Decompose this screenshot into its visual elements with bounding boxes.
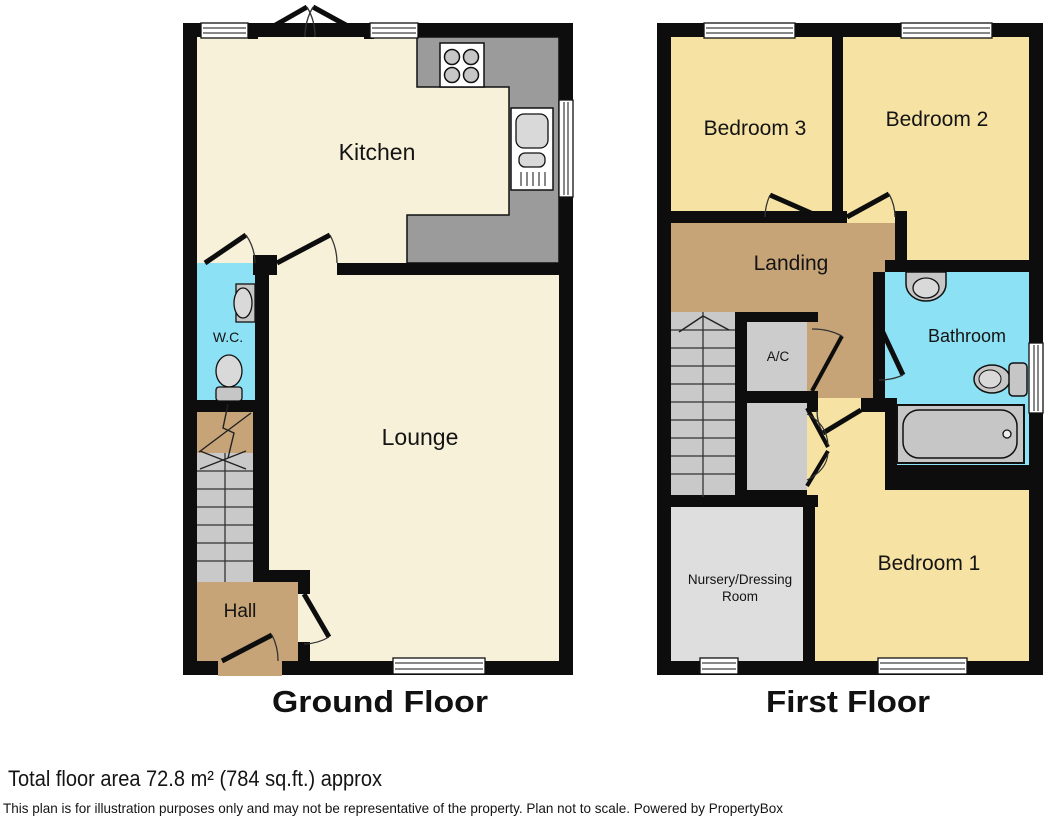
label-landing: Landing: [754, 252, 829, 275]
wall-closets-south: [671, 495, 818, 507]
wall-hall-north-stub: [255, 570, 310, 582]
label-bathroom: Bathroom: [928, 326, 1006, 346]
label-nursery-line2: Room: [722, 589, 758, 604]
floorplan-canvas: Kitchen W.C. Lounge Hall Ground Floor: [0, 0, 1056, 824]
window-frame: [201, 23, 248, 38]
wall-patio-door-stub-left: [248, 23, 258, 39]
basin-bowl: [234, 288, 252, 318]
label-bedroom3: Bedroom 3: [704, 117, 807, 140]
hob-ring: [445, 50, 460, 65]
wall-bed3-bed2: [832, 37, 843, 223]
wall-kitchen-lounge: [337, 263, 559, 275]
wall-bathroom-south: [885, 465, 1029, 477]
ground-floor-plan: Kitchen W.C. Lounge Hall Ground Floor: [183, 7, 573, 719]
window-frame: [901, 23, 992, 38]
toilet-bowl-inner: [979, 370, 1001, 388]
sink-basin: [516, 114, 548, 148]
total-floor-area-text: Total floor area 72.8 m² (784 sq.ft.) ap…: [8, 766, 382, 791]
first-floor-plan: Bedroom 3 Bedroom 2 Landing A/C Bathroom…: [657, 23, 1043, 719]
room-lounge: [255, 263, 559, 661]
wall-bathroom-north: [885, 260, 1029, 272]
disclaimer-text: This plan is for illustration purposes o…: [3, 800, 783, 816]
room-wardrobe: [747, 403, 807, 490]
window-frame: [1029, 343, 1043, 413]
toilet-cistern: [1009, 363, 1027, 396]
label-lounge: Lounge: [382, 424, 459, 450]
label-ac: A/C: [767, 349, 790, 364]
wall-ac-north: [735, 312, 818, 322]
wall-stairs-east: [255, 412, 269, 570]
first-floor-title: First Floor: [766, 684, 930, 719]
toilet-cistern: [216, 387, 242, 401]
bathroom-basin: [906, 272, 946, 301]
footer: Total floor area 72.8 m² (784 sq.ft.) ap…: [3, 766, 783, 816]
label-kitchen: Kitchen: [339, 139, 416, 165]
window-frame: [878, 658, 967, 674]
wc-toilet: [216, 355, 242, 401]
window-frame: [370, 23, 418, 38]
label-bedroom2: Bedroom 2: [886, 108, 989, 131]
hob-ring: [464, 68, 479, 83]
gf-window-top-left: [201, 23, 248, 38]
wall-hall-lounge-top-stub: [298, 582, 310, 594]
ff-window-bed1-south: [878, 658, 967, 674]
window-frame: [393, 658, 485, 674]
wall-bed1-door-stub-right: [861, 398, 885, 412]
wall-wc-east: [255, 263, 269, 412]
gf-window-lounge-south: [393, 658, 485, 674]
hob-ring: [464, 50, 479, 65]
basin-bowl: [913, 278, 939, 298]
sink-basin-small: [519, 153, 545, 167]
wall-stairs-east: [735, 312, 747, 507]
wall-bath-west: [885, 398, 897, 465]
label-nursery-line1: Nursery/Dressing: [688, 572, 792, 587]
wall-hall-lounge-bottom-stub: [298, 642, 310, 661]
wall-bathroom-west-lower: [873, 380, 885, 398]
ff-window-bed3-north: [704, 23, 795, 38]
ff-window-nursery-south: [700, 658, 738, 674]
gf-window-kitchen-east: [559, 100, 573, 197]
label-bedroom1: Bedroom 1: [878, 552, 981, 575]
hob: [440, 43, 484, 87]
landing-corridor: [807, 312, 873, 403]
hob-ring: [445, 68, 460, 83]
wall-nursery-east: [803, 495, 815, 661]
window-frame: [700, 658, 738, 674]
window-frame: [559, 100, 573, 197]
ff-window-bed2-north: [901, 23, 992, 38]
window-frame: [704, 23, 795, 38]
label-hall: Hall: [224, 601, 257, 622]
floorplan-page: Kitchen W.C. Lounge Hall Ground Floor: [0, 0, 1056, 824]
bathroom-toilet: [974, 363, 1027, 396]
wall-bathroom-west-upper: [873, 272, 885, 324]
wall-landing-north-mid: [820, 211, 847, 223]
kitchen-sink: [511, 108, 553, 190]
wall-landing-north-west: [671, 211, 765, 223]
bathtub-plug: [1003, 430, 1011, 438]
label-wc: W.C.: [213, 329, 243, 345]
wc-basin: [234, 284, 255, 322]
gf-window-top-right: [370, 23, 418, 38]
front-door-threshold: [218, 661, 282, 676]
toilet-bowl: [216, 355, 242, 387]
ff-window-bathroom-east: [1029, 343, 1043, 413]
bathroom-bathtub: [897, 405, 1024, 463]
room-bedroom1: [807, 490, 1029, 661]
wall-wc-south: [197, 400, 269, 412]
ground-floor-title: Ground Floor: [272, 684, 488, 719]
